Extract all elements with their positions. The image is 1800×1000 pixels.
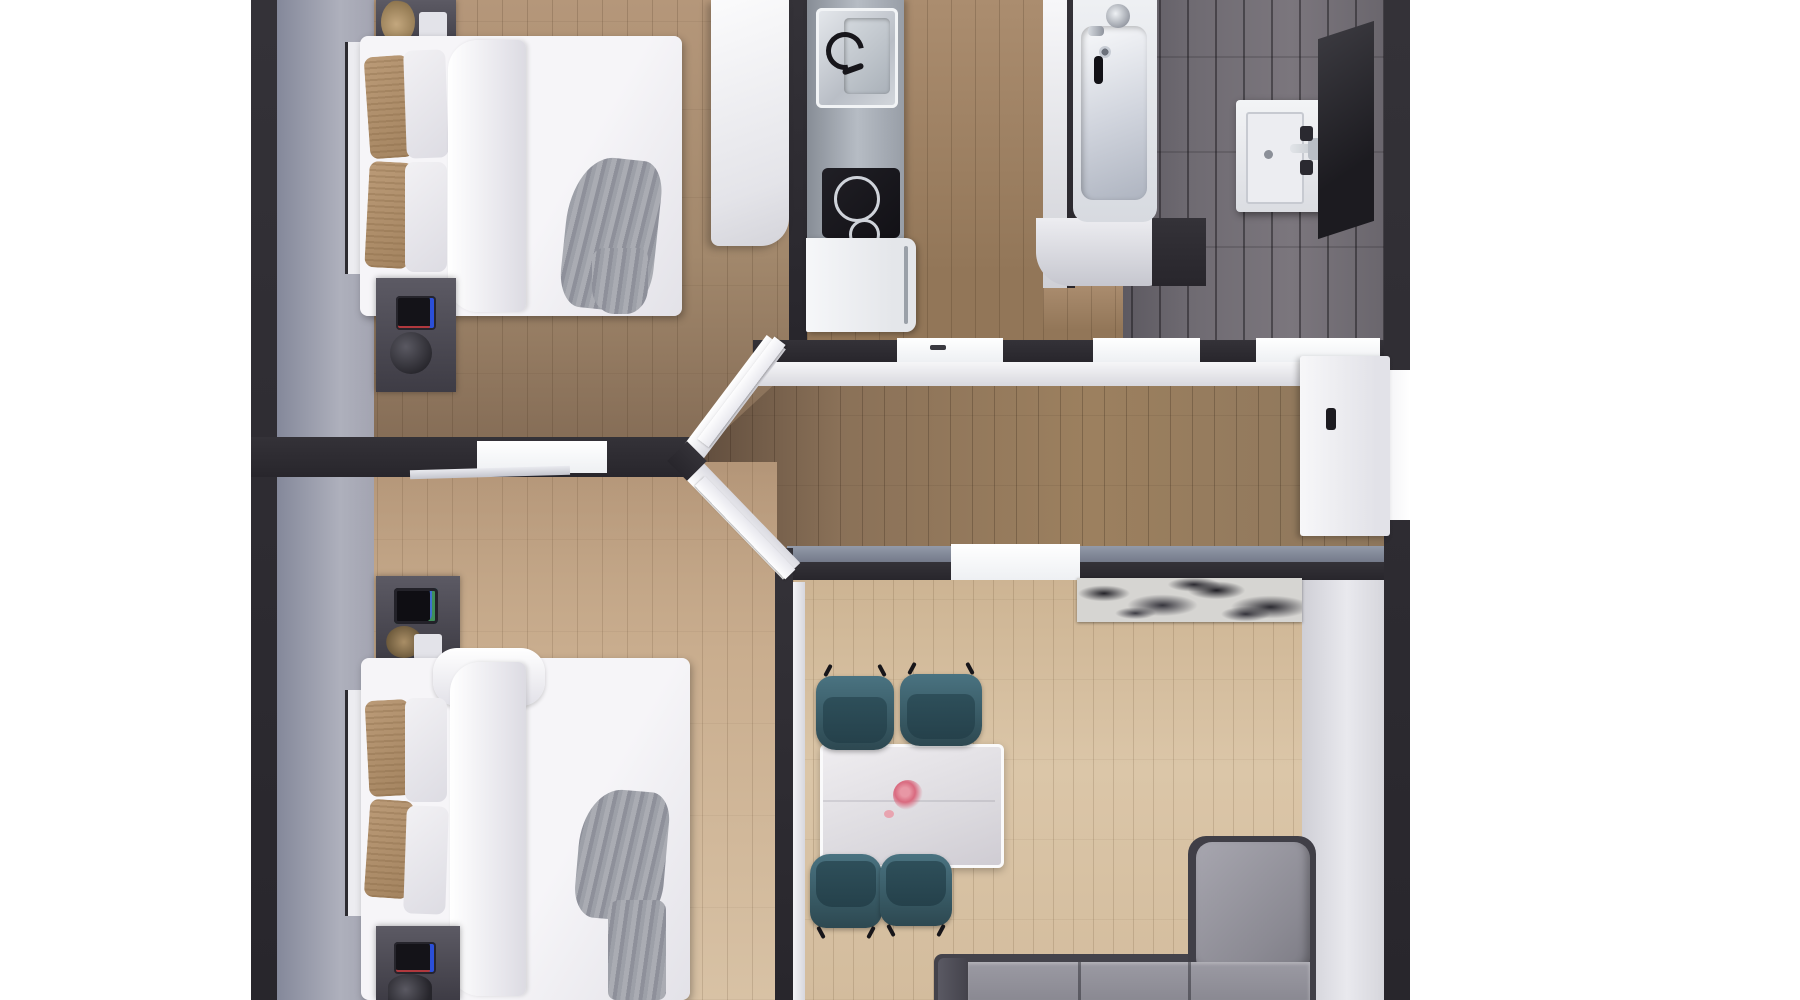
tub-nook-ledge bbox=[1036, 218, 1158, 286]
sofa-armrest bbox=[938, 958, 966, 1000]
chair-cushion bbox=[886, 861, 945, 906]
vanity-drain-icon bbox=[1264, 150, 1273, 159]
hallway-floor bbox=[686, 364, 1384, 556]
dining-chair bbox=[810, 854, 882, 928]
bed-2-pillow-white bbox=[405, 698, 447, 802]
sofa-cushion-seam bbox=[1188, 962, 1191, 1000]
living-door-sill bbox=[951, 544, 1080, 580]
bedroom1-kitchen-wall bbox=[789, 0, 807, 343]
bathroom-wall-stub bbox=[1152, 218, 1206, 286]
hallway-top-wall-face bbox=[753, 362, 1384, 386]
bed-1-throw-tail bbox=[592, 248, 648, 314]
bedroom2-living-wall bbox=[775, 548, 793, 1000]
bed-2-duvet-fold bbox=[450, 662, 526, 996]
hallway-bottom-wall-face bbox=[787, 546, 1384, 562]
wardrobe bbox=[711, 0, 789, 246]
bed-1-pillow-white bbox=[403, 49, 449, 158]
bathroom-door-sill bbox=[1093, 338, 1200, 362]
floor-plan-render bbox=[0, 0, 1800, 1000]
sofa-corner-cushion bbox=[1196, 842, 1310, 974]
bathroom-wood-patch bbox=[1043, 284, 1123, 342]
kitchen-door-hinge bbox=[930, 345, 946, 350]
tub-faucet-icon bbox=[1088, 26, 1104, 36]
fridge-handle-icon bbox=[904, 246, 908, 324]
entrance-door-handle-icon bbox=[1326, 408, 1336, 430]
phone-icon bbox=[396, 296, 436, 330]
bathtub-basin bbox=[1081, 26, 1147, 200]
dining-chair bbox=[900, 674, 982, 746]
tub-handle-icon bbox=[1094, 56, 1103, 84]
dining-chair bbox=[880, 854, 952, 926]
bed-1-pillow-white bbox=[405, 162, 447, 272]
chair-cushion bbox=[816, 861, 875, 907]
flower-petal-icon bbox=[884, 810, 894, 818]
sofa-seat-cushions bbox=[968, 962, 1310, 1000]
dark-vase-icon bbox=[390, 332, 432, 374]
left-outer-wall bbox=[251, 0, 277, 1000]
kitchen-door-sill bbox=[897, 338, 1003, 362]
bed-2-pillow-white bbox=[403, 805, 449, 914]
chair-cushion bbox=[823, 697, 887, 743]
shower-head-icon bbox=[1106, 4, 1130, 28]
phone-icon bbox=[394, 942, 436, 974]
toiletry-bottle-icon bbox=[1300, 126, 1313, 141]
sofa-cushion-seam bbox=[1078, 962, 1081, 1000]
marble-rug bbox=[1077, 578, 1302, 622]
tablet-icon bbox=[394, 588, 438, 624]
dark-vase-icon bbox=[388, 974, 432, 1000]
bathroom-mirror bbox=[1318, 21, 1374, 239]
vanity-basin bbox=[1246, 112, 1304, 204]
chair-cushion bbox=[907, 694, 974, 739]
cooktop-ring-large-icon bbox=[834, 176, 880, 222]
fridge bbox=[806, 238, 916, 332]
entrance-door bbox=[1300, 356, 1390, 536]
bedroom2-living-wall-face bbox=[793, 582, 805, 1000]
toiletry-bottle-icon bbox=[1300, 160, 1313, 175]
flower-vase-icon bbox=[893, 780, 923, 810]
dining-chair bbox=[816, 676, 894, 750]
bed-1-duvet-fold bbox=[448, 40, 526, 312]
bed-2-throw-tail bbox=[608, 900, 666, 1000]
